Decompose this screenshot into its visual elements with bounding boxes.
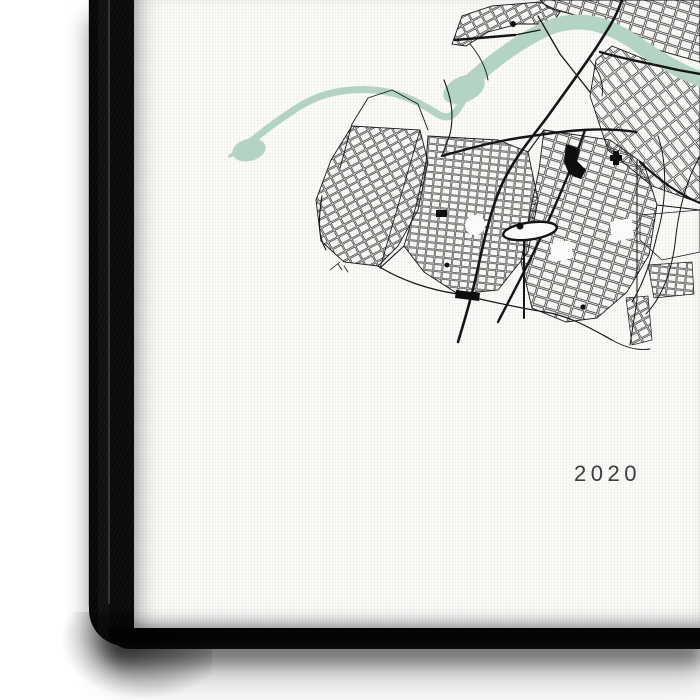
product-photo: 2020 (0, 0, 700, 700)
canvas-side-edge (89, 0, 134, 646)
pond-shape (230, 135, 268, 165)
canvas-edge-fold-highlight (108, 0, 110, 604)
year-label: 2020 (574, 461, 641, 487)
map-artwork (134, 0, 700, 628)
canvas-bottom-edge (108, 628, 700, 649)
